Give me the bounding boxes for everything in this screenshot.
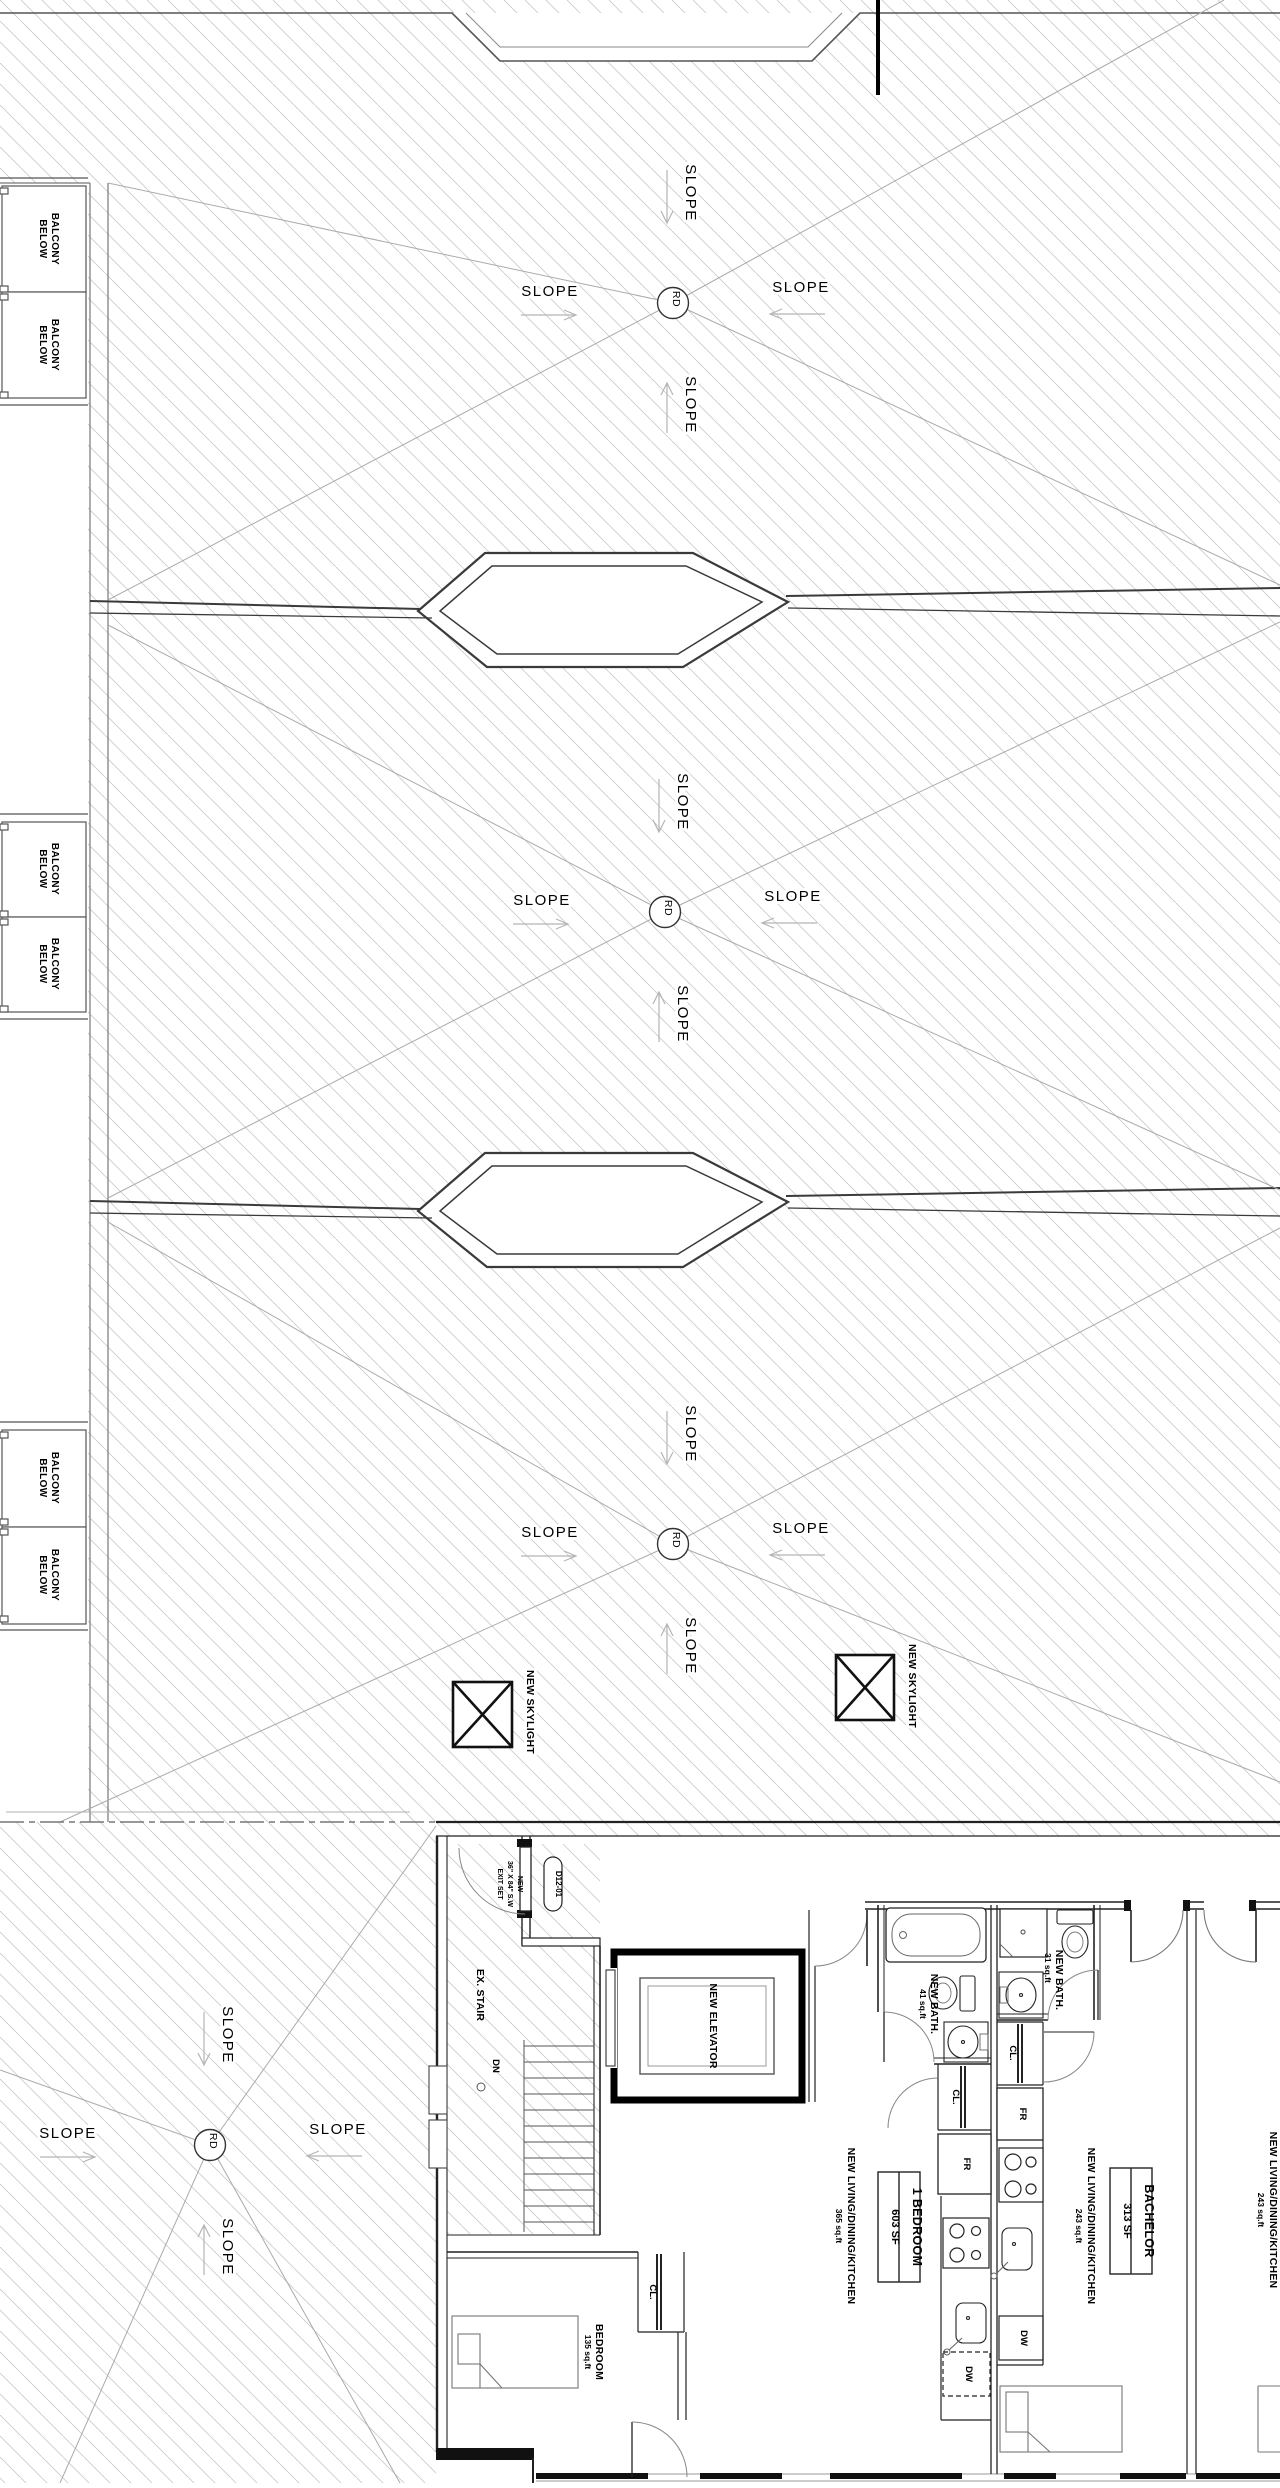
fridge-label: FR: [961, 2158, 972, 2171]
balcony-below-label: BALCONY: [49, 843, 60, 895]
bed: [452, 2316, 578, 2388]
living3-label: NEW LIVING/DINING/KITCHEN: [1267, 2132, 1279, 2289]
living1-label: NEW LIVING/DINING/KITCHEN: [845, 2148, 857, 2305]
sink: [999, 1972, 1043, 2018]
balcony-group-2: [0, 814, 88, 1019]
wall-corner: [436, 2448, 534, 2460]
new-elevator: [604, 1952, 802, 2100]
unit1-type-label: 1 BEDROOM: [910, 2188, 924, 2266]
slope-label: SLOPE: [513, 892, 571, 909]
slope-label: SLOPE: [772, 1520, 830, 1537]
slope-label: SLOPE: [682, 164, 699, 222]
living2-area-label: 243 sq.ft: [1074, 2209, 1084, 2244]
door-jambs: [1124, 1900, 1256, 1911]
hall-door: [809, 1910, 867, 2102]
balcony-group-1: [0, 178, 88, 405]
bedroom-label: BEDROOM: [593, 2324, 605, 2380]
slope-label: SLOPE: [682, 1617, 699, 1675]
unit2-type-label: BACHELOR: [1142, 2184, 1156, 2257]
match-line-tick: [876, 0, 880, 95]
slope-label: SLOPE: [521, 1524, 579, 1541]
ex-stair-label: EX. STAIR: [474, 1969, 486, 2022]
balcony-below-label: BALCONY: [49, 319, 60, 371]
slope-label: SLOPE: [219, 2218, 236, 2276]
bath2-area-label: 31 sq.ft: [1043, 1953, 1053, 1983]
sink: [944, 2022, 988, 2062]
door-spec-label: EXIT SET: [496, 1868, 503, 1900]
floor-roof-plan-svg: BALCONY BELOW BALCONY BELOW BALCONY BELO…: [0, 0, 1280, 2483]
down-label: DN: [490, 2059, 501, 2073]
unit2-entry-door: [1131, 1910, 1183, 1962]
shower: [1000, 1909, 1047, 1957]
slope-label: SLOPE: [772, 279, 830, 296]
slope-label: SLOPE: [219, 2006, 236, 2064]
fridge-label: FR: [1017, 2108, 1028, 2121]
living3-area-label: 243 sq.ft: [1256, 2193, 1266, 2228]
slope-label: SLOPE: [682, 1405, 699, 1463]
slope-label: SLOPE: [764, 888, 822, 905]
balcony-below-label: BELOW: [37, 325, 48, 364]
closet-label: CL.: [950, 2089, 961, 2104]
kitchen-unit2: [991, 2140, 1043, 2365]
bottom-exterior-wall: [536, 2473, 1280, 2481]
balcony-group-3: [0, 1422, 88, 1630]
unit1-area-label: 603 SF: [889, 2209, 901, 2245]
bath1-label: NEW BATH.: [928, 1974, 940, 2035]
balcony-below-label: BELOW: [37, 219, 48, 258]
stove: [943, 2218, 989, 2268]
kitchen-unit1: [941, 2196, 991, 2420]
unit2-area-label: 313 SF: [1121, 2203, 1133, 2239]
drawing-canvas: BALCONY BELOW BALCONY BELOW BALCONY BELO…: [0, 0, 1280, 2483]
stove: [999, 2148, 1043, 2202]
dishwasher-label: DW: [963, 2366, 974, 2382]
slope-label: SLOPE: [39, 2125, 97, 2142]
closet-label: CL.: [1007, 2045, 1018, 2060]
slope-label: SLOPE: [674, 773, 691, 831]
bath1-area-label: 41 sq.ft: [918, 1989, 928, 2019]
door-tag-label: D12-01: [554, 1871, 563, 1898]
slope-label: SLOPE: [682, 376, 699, 434]
balcony-below-label: BELOW: [37, 1555, 48, 1594]
bathtub: [886, 1908, 986, 1962]
balcony-below-label: BELOW: [37, 1458, 48, 1497]
balcony-below-label: BELOW: [37, 849, 48, 888]
balcony-below-label: BALCONY: [49, 1452, 60, 1504]
living1-area-label: 365 sq.ft: [834, 2209, 844, 2244]
slope-label: SLOPE: [309, 2121, 367, 2138]
closet-1: [888, 2064, 991, 2130]
exterior-wall-band: [436, 1822, 1280, 1836]
rd-label: RD: [670, 291, 682, 307]
slope-label: SLOPE: [674, 985, 691, 1043]
balcony-below-label: BELOW: [37, 944, 48, 983]
new-skylight-label: NEW SKYLIGHT: [524, 1670, 536, 1754]
bath2-label: NEW BATH.: [1053, 1950, 1065, 2011]
new-elevator-label: NEW ELEVATOR: [707, 1983, 719, 2068]
roof-plan: BALCONY BELOW BALCONY BELOW BALCONY BELO…: [0, 0, 1280, 1822]
new-skylight-right: [836, 1655, 894, 1720]
slope-label: SLOPE: [521, 283, 579, 300]
rd-label: RD: [670, 1532, 682, 1548]
balcony-below-label: BALCONY: [49, 213, 60, 265]
living2-label: NEW LIVING/DINING/KITCHEN: [1085, 2148, 1097, 2305]
new-skylight-label: NEW SKYLIGHT: [906, 1644, 918, 1728]
closet-label: CL.: [647, 2284, 658, 2299]
new-skylight-left: [453, 1682, 512, 1747]
bachelor-bed: [1000, 2386, 1122, 2452]
rd-label: RD: [662, 900, 674, 916]
unit3-entry-door: [1204, 1910, 1256, 1962]
door-spec-label: NEW: [516, 1876, 523, 1893]
balcony-below-label: BALCONY: [49, 938, 60, 990]
floor-plan: D12-01 NEW 36" X 84" S.W EXIT SET EX. ST…: [429, 1822, 1280, 2483]
door-spec-label: 36" X 84" S.W: [506, 1861, 513, 1907]
dishwasher-label: DW: [1018, 2330, 1029, 2346]
bedroom-area-label: 135 sq.ft: [583, 2335, 593, 2370]
lower-roof: SLOPE SLOPE SLOPE SLOPE RD: [0, 1812, 436, 2483]
unit3-bed-partial: [1258, 2386, 1280, 2452]
balcony-below-label: BALCONY: [49, 1549, 60, 1601]
rd-label: RD: [207, 2133, 219, 2149]
kitchen-sink: [944, 2303, 986, 2355]
